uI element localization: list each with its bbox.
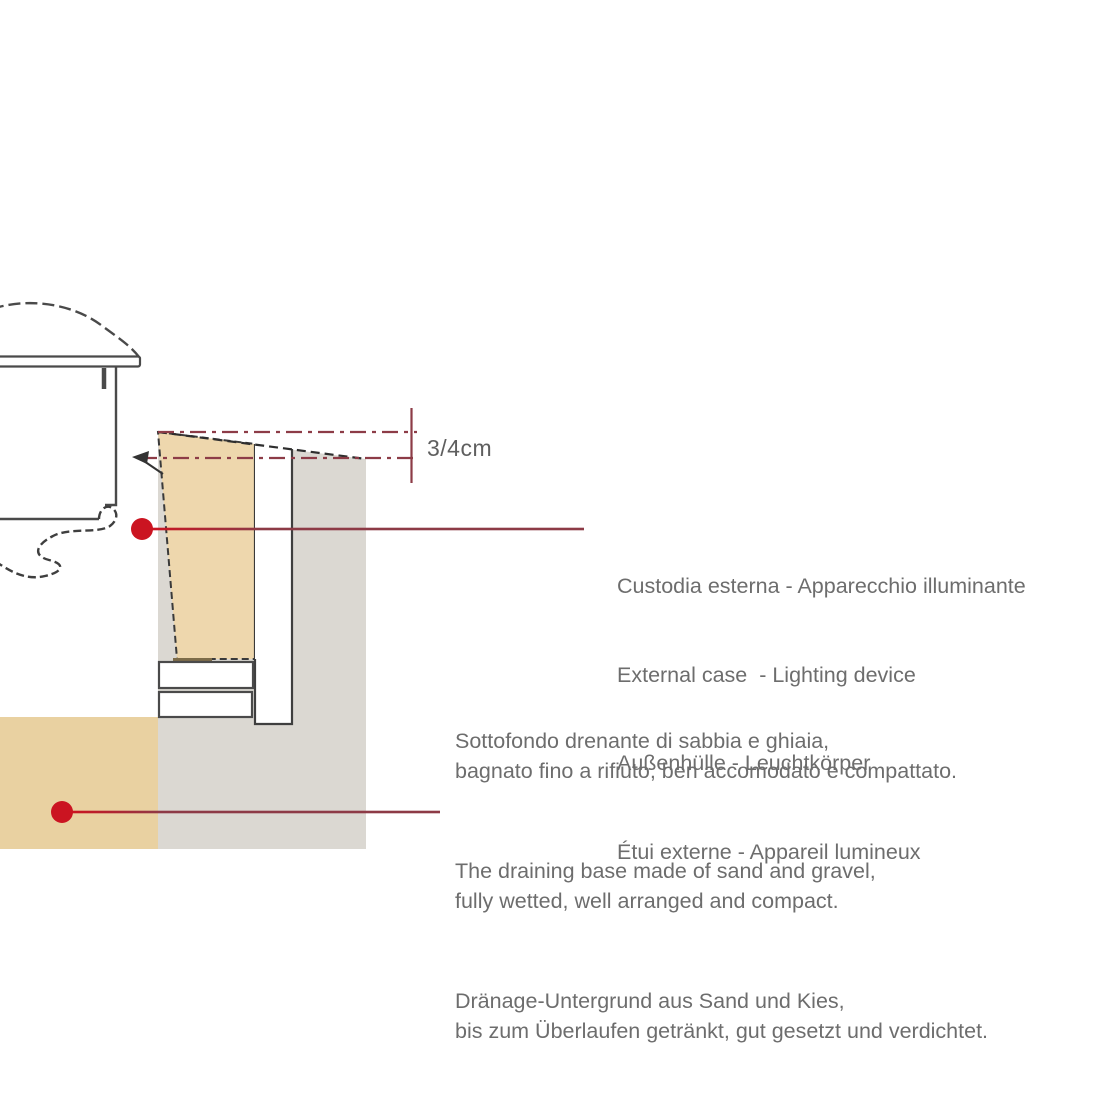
fixture-break-squiggle <box>0 507 116 578</box>
base-annotation-de-line1: Dränage-Untergrund aus Sand und Kies, <box>455 989 845 1013</box>
base-annotation-en-line1: The draining base made of sand and grave… <box>455 859 876 883</box>
base-annotation-en: The draining base made of sand and grave… <box>455 856 988 916</box>
fixture-dome-outline <box>0 303 139 357</box>
dimension-label: 3/4cm <box>427 435 492 461</box>
mounting-ring-bottom <box>159 692 252 717</box>
fixture-flange <box>0 357 140 367</box>
mounting-ring-top <box>159 662 253 688</box>
base-annotation-it: Sottofondo drenante di sabbia e ghiaia,b… <box>455 726 988 786</box>
base-annotation-block: Sottofondo drenante di sabbia e ghiaia,b… <box>455 666 988 1100</box>
base-annotation-it-line1: Sottofondo drenante di sabbia e ghiaia, <box>455 729 829 753</box>
case-callout-marker-icon <box>131 518 153 540</box>
leader-arrowhead-icon <box>132 451 149 464</box>
base-annotation-de: Dränage-Untergrund aus Sand und Kies,bis… <box>455 986 988 1046</box>
cable-channel <box>255 444 292 724</box>
fixture-stem <box>105 367 116 505</box>
callout-line-case <box>152 528 584 531</box>
base-annotation-it-line2: bagnato fino a rifiuto, ben accomodato e… <box>455 759 957 783</box>
installation-diagram-page: 3/4cm Custodia esterna - Apparecchio ill… <box>0 0 1100 1100</box>
case-annotation-it: Custodia esterna - Apparecchio illuminan… <box>617 572 1026 602</box>
base-callout-marker-icon <box>51 801 73 823</box>
sand-gravel-base <box>0 717 158 849</box>
base-annotation-en-line2: fully wetted, well arranged and compact. <box>455 889 839 913</box>
callout-line-base <box>72 811 440 814</box>
base-annotation-de-line2: bis zum Überlaufen getränkt, gut gesetzt… <box>455 1019 988 1043</box>
